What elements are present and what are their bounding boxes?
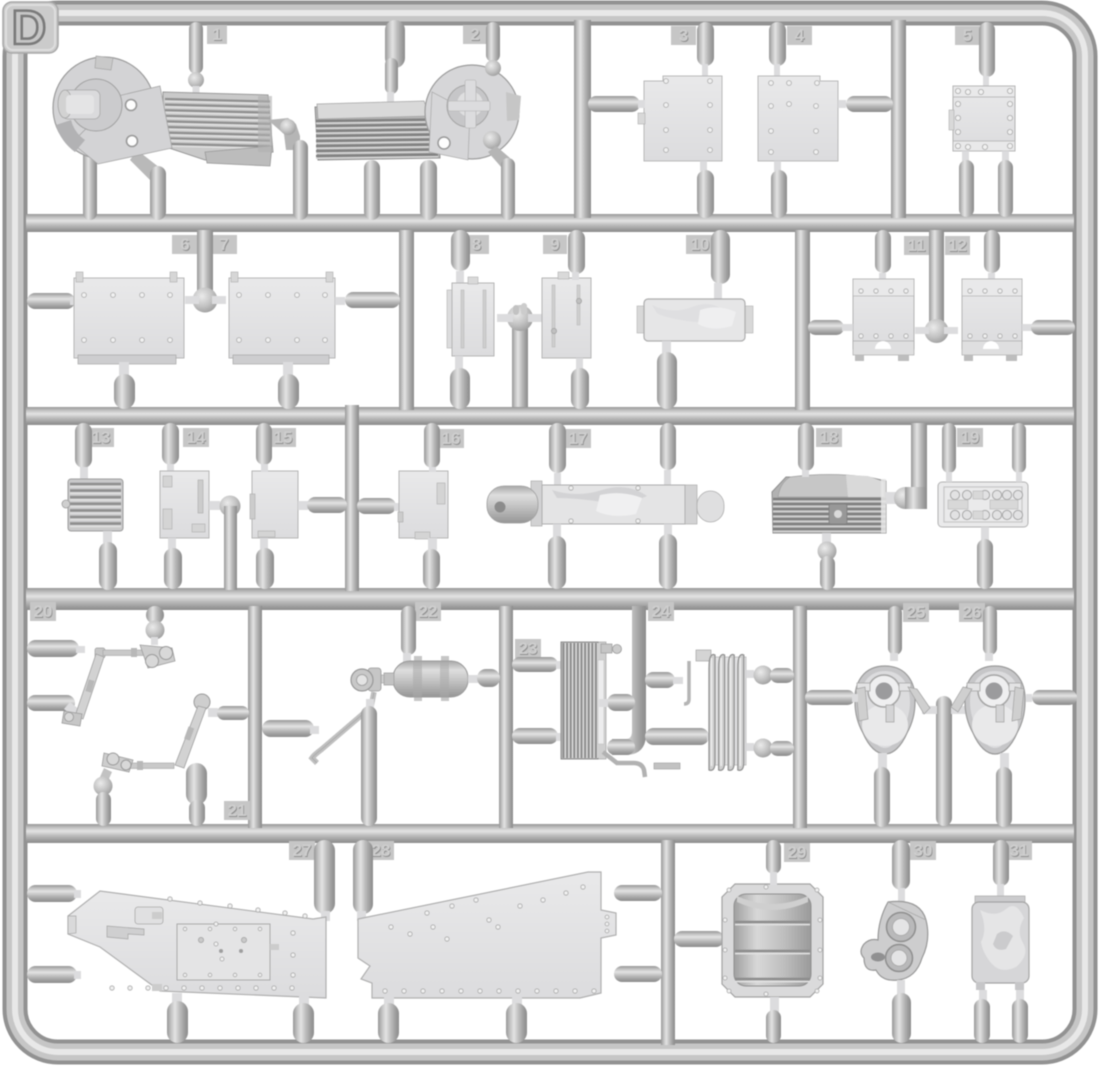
svg-text:21: 21 xyxy=(228,801,247,820)
svg-text:D: D xyxy=(12,2,47,55)
svg-text:27: 27 xyxy=(293,841,312,860)
svg-text:19: 19 xyxy=(961,428,980,447)
svg-text:14: 14 xyxy=(187,428,206,447)
svg-text:22: 22 xyxy=(419,602,438,621)
svg-text:8: 8 xyxy=(472,235,481,254)
svg-text:6: 6 xyxy=(180,235,189,254)
svg-text:7: 7 xyxy=(219,235,228,254)
svg-text:24: 24 xyxy=(652,602,671,621)
svg-text:5: 5 xyxy=(963,26,972,45)
svg-text:30: 30 xyxy=(914,841,933,860)
svg-text:26: 26 xyxy=(963,603,982,622)
svg-text:17: 17 xyxy=(569,429,588,448)
svg-text:3: 3 xyxy=(679,26,688,45)
svg-text:25: 25 xyxy=(907,603,926,622)
svg-text:15: 15 xyxy=(274,428,293,447)
svg-text:28: 28 xyxy=(372,841,391,860)
svg-text:1: 1 xyxy=(212,25,221,44)
svg-text:16: 16 xyxy=(442,429,461,448)
svg-text:11: 11 xyxy=(908,236,926,255)
svg-text:23: 23 xyxy=(519,639,538,658)
svg-text:2: 2 xyxy=(470,25,479,44)
svg-text:12: 12 xyxy=(948,236,967,255)
svg-text:10: 10 xyxy=(691,235,710,254)
svg-text:13: 13 xyxy=(92,428,111,447)
svg-text:29: 29 xyxy=(788,843,807,862)
svg-text:18: 18 xyxy=(820,428,839,447)
svg-text:31: 31 xyxy=(1010,841,1029,860)
svg-text:4: 4 xyxy=(795,26,805,45)
svg-text:20: 20 xyxy=(34,602,53,621)
svg-text:9: 9 xyxy=(550,235,559,254)
